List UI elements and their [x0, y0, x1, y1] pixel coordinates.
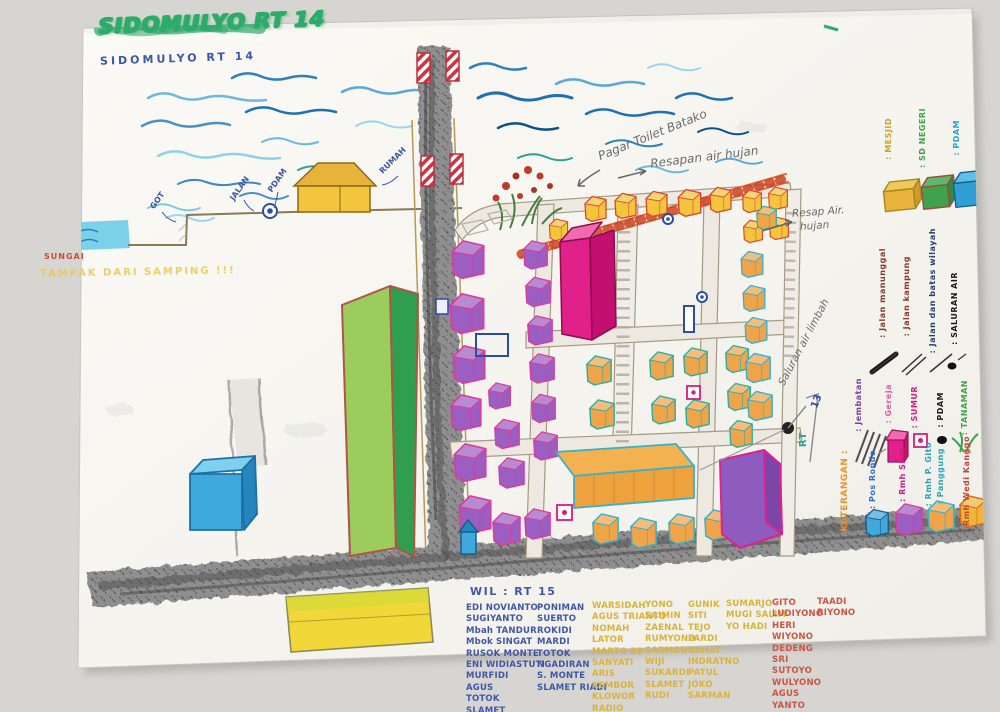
- roster-header: WIL : RT 15: [470, 585, 556, 598]
- legend-label-jalan-kampung: : Jalan kampung: [902, 256, 911, 336]
- house-icon: [585, 196, 606, 221]
- house-icon: [489, 383, 511, 409]
- legend-sd-box: [921, 175, 957, 209]
- legend-saluran-symbol: [948, 363, 957, 370]
- house-icon: [769, 187, 788, 209]
- mosque-building: [286, 588, 433, 652]
- house-icon: [743, 190, 762, 212]
- legend-label-jalan-batas: : Jalan dan batas wilayah: [928, 228, 937, 353]
- legend-label-saluran-air: : SALURAN AIR: [950, 272, 959, 345]
- legend-label-tanaman: : TANAMAN: [960, 380, 969, 435]
- house-icon: [525, 509, 550, 539]
- legend-pdam-box: [952, 170, 991, 208]
- legend-label-rmh-gito: : Rmh P. Gito: [924, 442, 933, 506]
- purple-big-building: [720, 450, 782, 548]
- legend-label-pdam-oval: : PDAM: [936, 392, 945, 428]
- house-icon: [528, 316, 552, 345]
- legend-label-rmh-shm: : Rmh SHM: [898, 448, 907, 502]
- annotation-resap-air-2: hujan: [800, 219, 830, 233]
- house-icon: [452, 241, 483, 278]
- house-icon: [526, 278, 550, 307]
- legend-mesjid-box: [883, 179, 923, 212]
- house-icon: [495, 420, 519, 449]
- house-icon: [684, 348, 707, 376]
- roster-column-1: EDI NOVIANTO SUGIYANTO Mbah TANDUR Mbok …: [466, 603, 545, 712]
- magenta-building: [560, 222, 616, 340]
- blue-tall-box: [684, 306, 694, 332]
- side-view-house-body: [298, 186, 370, 212]
- house-icon: [669, 514, 694, 544]
- orange-hall: [556, 444, 694, 508]
- legend-rmh-shm-icon: [896, 504, 922, 535]
- house-icon: [686, 400, 709, 428]
- house-icon: [646, 191, 667, 216]
- house-icon: [757, 206, 777, 229]
- house-icon: [590, 400, 614, 429]
- legend-label-gereja: : Gereja: [884, 384, 893, 424]
- house-icon: [587, 356, 611, 385]
- legend-keterangan: KETERANGAN :: [840, 450, 850, 531]
- house-icon: [453, 346, 484, 383]
- house-icon: [593, 514, 618, 544]
- house-icon: [678, 190, 700, 217]
- side-view-water-label: SUNGAI: [44, 252, 85, 261]
- house-icon: [451, 294, 484, 333]
- legend-label-jembatan: : Jembatan: [854, 378, 863, 432]
- house-icon: [451, 395, 480, 430]
- blue-small-box: [436, 299, 448, 314]
- legend-label-pdam-box: : PDAM: [952, 120, 961, 156]
- house-icon: [730, 421, 752, 448]
- legend-label-pos-rondo: : Pos Rondo: [868, 450, 877, 509]
- legend-pdam-symbol: [937, 436, 947, 444]
- legend-pos-rondo-icon: [866, 510, 889, 537]
- house-icon: [748, 392, 772, 421]
- house-icon: [534, 432, 557, 460]
- house-icon: [493, 513, 520, 545]
- house-icon: [726, 346, 749, 373]
- house-icon: [532, 395, 555, 423]
- house-icon: [741, 252, 763, 278]
- house-icon: [746, 354, 770, 383]
- house-icon: [743, 286, 765, 312]
- annotation-rt-label: RT: [798, 432, 809, 447]
- legend-label-sumur: : SUMUR: [910, 386, 919, 428]
- legend-label-jalan-manunggal: : Jalan manunggal: [878, 248, 887, 338]
- house-icon: [652, 396, 675, 424]
- legend-label-mesjid: : MESJID: [884, 118, 893, 160]
- house-icon: [710, 187, 731, 212]
- house-icon: [454, 444, 485, 481]
- legend-label-sd-negeri: : SD NEGERI: [918, 108, 927, 168]
- blue-building: [190, 456, 257, 530]
- house-icon: [650, 352, 673, 380]
- house-icon: [728, 384, 751, 411]
- green-building: [342, 286, 418, 556]
- house-icon: [745, 318, 767, 344]
- photographed-hand-drawn-map: .hPu{color:#9a5fc0;--oc:#d63fa0}.hYe{col…: [0, 0, 1000, 712]
- legend-label-rmh-gito-2: : Panggung: [936, 448, 945, 504]
- house-icon: [524, 241, 547, 269]
- house-icon: [631, 518, 656, 548]
- roster-column-7: GITO LUDIYONO HERI WIYONO DEDENG SRI SUT…: [772, 598, 823, 712]
- house-icon: [499, 458, 524, 488]
- roster-column-8: TAADI RIYONO: [817, 597, 855, 620]
- house-icon: [615, 193, 636, 218]
- house-icon: [530, 354, 554, 383]
- legend-label-rmh-wedi: : Rmh Wedi Kanggo: [962, 436, 971, 533]
